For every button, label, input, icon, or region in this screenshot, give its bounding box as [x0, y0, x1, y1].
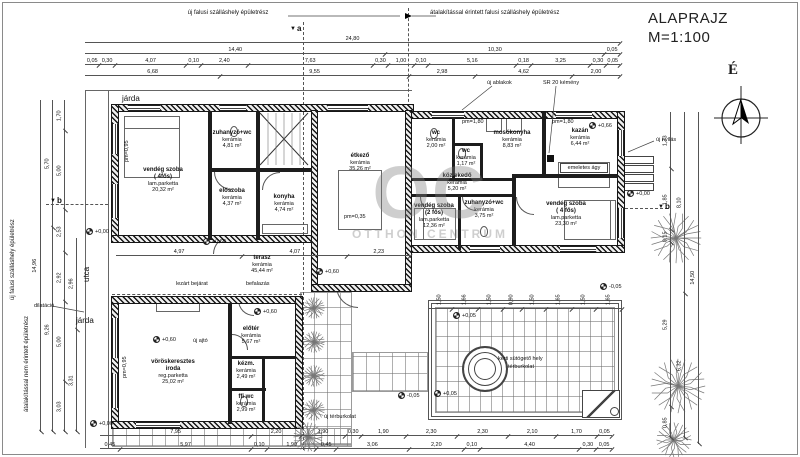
dimension-value: 1,90 — [318, 430, 329, 436]
dimension-segment: 1,90 — [361, 427, 405, 435]
room-area: 35,26 m² — [349, 166, 371, 172]
room-area: 1,17 m² — [457, 161, 476, 167]
partition-wall — [512, 174, 516, 246]
dimension-value: 5,00 — [57, 336, 63, 347]
window-icon — [560, 246, 596, 252]
section-marker: ▼b — [50, 196, 62, 205]
section-marker: ▼a — [290, 24, 301, 33]
dimension-value: 6,68 — [147, 70, 158, 76]
furniture-icon — [262, 224, 308, 234]
dimension-value: 0,05 — [599, 443, 610, 449]
section-marker-icon: ▼ — [658, 204, 664, 210]
room-name: zuhanyzó+wc — [213, 130, 252, 137]
dimension-segment: 1,66 — [452, 300, 478, 308]
partition-wall — [228, 388, 266, 391]
dimension-value: 1,50 — [531, 294, 537, 305]
level-mark: +0,60 — [153, 336, 176, 343]
exterior-stair-step — [624, 174, 654, 182]
dimension-segment: 2,96 — [68, 238, 76, 330]
partition-wall — [458, 197, 461, 250]
annotation: új ablakok — [487, 80, 512, 86]
dimension-value: 1,70 — [57, 110, 63, 121]
dimension-chain: 1,705,002,532,925,003,03 — [56, 100, 65, 432]
dimension-segment: 0,85 — [662, 407, 670, 438]
pavement-area — [352, 352, 428, 392]
level-mark: +0,60 — [316, 268, 339, 275]
dimension-segment: 0,18 — [516, 56, 530, 64]
dimension-segment: 0,90 — [503, 300, 522, 308]
partition-wall — [256, 111, 260, 172]
page-title: ALAPRAJZ — [648, 10, 728, 29]
dimension-segment: 5,00 — [56, 302, 64, 382]
dimension-value: 0,15 — [663, 231, 669, 242]
wall — [296, 297, 302, 428]
dimension-value: 1,65 — [606, 294, 612, 305]
dimension-segment: 2,30 — [457, 427, 508, 435]
window-icon — [432, 112, 464, 118]
dimension-segment: 2,53 — [56, 210, 64, 253]
dimension-value: 3,31 — [69, 376, 75, 387]
dimension-segment: 0,10 — [251, 440, 267, 448]
room-name: ffi wc — [236, 394, 256, 401]
parapet-label: pm=1,80 — [552, 119, 574, 125]
dimension-chain: 0,455,970,101,900,453,062,200,104,400,30… — [100, 440, 612, 449]
section-marker-letter: b — [665, 202, 670, 211]
section-marker-letter: b — [57, 196, 62, 205]
room-finish: kerámia — [447, 180, 467, 186]
dimension-value: 0,30 — [102, 59, 113, 65]
dimension-value: 0,05 — [599, 430, 610, 436]
dimension-segment: 0,30 — [579, 440, 596, 448]
room-name: étkező — [349, 153, 371, 160]
level-mark: +0,60 — [203, 238, 226, 245]
dimension-segment: 0,30 — [590, 56, 605, 64]
room-finish: kerámia — [456, 155, 476, 161]
annotation: új térburkolat — [322, 414, 358, 420]
partition-wall — [228, 303, 232, 424]
door-arc-icon — [516, 197, 534, 215]
room-finish: kerámia — [474, 207, 494, 213]
dimension-segment: 2,30 — [406, 427, 457, 435]
dimension-segment: 24,80 — [85, 34, 620, 42]
room-area: 2,49 m² — [237, 374, 256, 380]
room-finish: lam.parketta — [551, 215, 581, 221]
dimension-segment: 0,10 — [414, 56, 428, 64]
dimension-segment: 0,45 — [316, 440, 336, 448]
annotation: kerti sütögető hely — [498, 356, 543, 362]
window-icon — [220, 105, 246, 111]
chimney-icon — [547, 155, 554, 162]
dimension-value: 0,18 — [518, 59, 529, 65]
door-arc-icon — [262, 172, 280, 190]
dimension-segment: 0,05 — [596, 440, 612, 448]
room-label: kézm.kerámia2,49 m² — [236, 361, 256, 381]
dimension-value: 5,70 — [45, 159, 51, 170]
dimension-segment: 2,23 — [347, 247, 410, 255]
window-icon — [112, 124, 118, 154]
dimension-segment: 0,15 — [662, 230, 670, 243]
window-icon — [112, 318, 118, 358]
window-icon — [328, 105, 368, 111]
window-icon — [556, 112, 592, 118]
level-value: +0,05 — [462, 313, 476, 319]
room-label: kazánkerámia6,44 m² — [570, 128, 590, 148]
dimension-value: 0,30 — [348, 430, 359, 436]
room-area: 4,74 m² — [275, 207, 294, 213]
dimension-value: 4,07 — [145, 59, 156, 65]
level-mark: +0,00 — [90, 420, 113, 427]
dimension-segment: 5,97 — [120, 440, 252, 448]
room-label: ffi wckerámia2,99 m² — [236, 394, 256, 414]
partition-wall — [512, 174, 618, 178]
section-marker-letter: a — [297, 24, 301, 33]
dimension-segment: 0,05 — [597, 427, 612, 435]
room-name: vendég szoba — [546, 201, 586, 208]
dimension-chain: 0,050,304,070,102,407,630,301,000,105,16… — [85, 56, 620, 65]
dimension-segment: 4,40 — [480, 440, 580, 448]
level-value: -0,05 — [407, 393, 420, 399]
partition-wall — [542, 112, 546, 178]
site-line — [85, 90, 412, 91]
dimension-value: 7,95 — [170, 430, 181, 436]
level-value: +0,60 — [263, 309, 277, 315]
dimension-chain: 8,106,32 — [676, 112, 685, 438]
level-value: -0,05 — [609, 284, 622, 290]
dimension-value: 4,40 — [524, 443, 535, 449]
annotation: emeletes ágy — [560, 163, 608, 173]
room-finish: reg.parketta — [158, 373, 187, 379]
level-mark-icon — [600, 283, 607, 290]
dimension-segment: 5,29 — [662, 243, 670, 407]
dimension-value: 0,10 — [466, 443, 477, 449]
dimension-segment: 14,50 — [690, 112, 698, 444]
dimension-segment: 7,95 — [100, 427, 251, 435]
room-area: 6,44 m² — [571, 141, 590, 147]
room-label: vendég szoba(2 fős)lam.parketta12,36 m² — [414, 203, 454, 229]
dimension-segment: 1,50 — [478, 300, 502, 308]
annotation: SR 20 kémény — [543, 80, 579, 86]
dimension-segment: 2,20 — [251, 427, 301, 435]
dimension-segment: 3,06 — [336, 440, 409, 448]
room-label: étkezőkerámia35,26 m² — [349, 153, 371, 173]
dimension-value: 2,40 — [219, 59, 230, 65]
room-name: kazán — [570, 128, 590, 135]
dimension-value: 6,32 — [677, 361, 683, 372]
partition-wall — [452, 143, 483, 146]
dimension-segment: 3,31 — [68, 330, 76, 432]
room-area: 23,30 m² — [555, 221, 577, 227]
dimension-value: 10,30 — [488, 48, 502, 54]
room-label: mosókonyhakerámia8,83 m² — [493, 130, 530, 150]
room-capacity: iroda — [151, 366, 195, 373]
dimension-value: 1,50 — [581, 294, 587, 305]
dimension-value: 4,07 — [289, 250, 300, 256]
dimension-value: 2,53 — [57, 226, 63, 237]
site-note: átalakítással nem érintett épületrész — [24, 316, 31, 412]
dimension-value: 3,06 — [367, 443, 378, 449]
dimension-value: 0,30 — [375, 59, 386, 65]
room-area: 2,00 m² — [427, 143, 446, 149]
room-area: 12,36 m² — [423, 223, 445, 229]
dimension-value: 7,63 — [305, 59, 316, 65]
dimension-value: 0,05 — [607, 59, 618, 65]
dimension-segment: 0,05 — [85, 56, 99, 64]
dimension-value: 9,26 — [45, 325, 51, 336]
level-mark-icon — [453, 312, 460, 319]
furniture-icon — [610, 200, 616, 240]
dimension-value: 2,10 — [527, 430, 538, 436]
wall — [112, 297, 302, 303]
room-name: közlekedő — [442, 173, 471, 180]
dimension-value: 14,40 — [228, 48, 242, 54]
dimension-value: 3,25 — [555, 59, 566, 65]
section-dash-line — [112, 294, 302, 295]
dimension-segment: 10,30 — [385, 45, 604, 53]
room-area: 2,99 m² — [237, 407, 256, 413]
room-name: zuhanyzó+wc — [465, 200, 504, 207]
site-note: utca — [82, 267, 92, 282]
room-finish: kerámia — [222, 137, 242, 143]
dimension-segment: 2,10 — [508, 427, 556, 435]
dimension-segment: 0,10 — [464, 440, 480, 448]
dimension-segment: 1,90 — [267, 440, 316, 448]
dimension-value: 3,03 — [57, 401, 63, 412]
dimension-segment: 14,40 — [85, 45, 385, 53]
room-finish: kerámia — [350, 160, 370, 166]
floor-plan-sheet: ALAPRAJZ M=1:100 É új falusi szálláshely… — [0, 0, 800, 457]
dimension-segment: 9,26 — [44, 228, 52, 432]
dimension-value: 2,98 — [437, 70, 448, 76]
level-mark: +0,00 — [627, 190, 650, 197]
dimension-chain: 7,952,201,900,301,902,302,302,101,700,05 — [100, 427, 612, 436]
room-area: 5,20 m² — [448, 186, 467, 192]
room-label: wckerámia1,17 m² — [456, 148, 476, 168]
room-capacity: ( 4fős) — [143, 174, 183, 181]
dimension-value: 0,45 — [321, 443, 332, 449]
note-new-building-part: új falusi szálláshely épületrész — [168, 10, 288, 17]
dimension-segment: 5,70 — [44, 100, 52, 228]
parapet-label: pm=0,95 — [124, 140, 130, 162]
dimension-segment: 0,30 — [373, 56, 388, 64]
drawing-scale: M=1:100 — [648, 29, 728, 48]
dimension-value: 24,80 — [346, 37, 360, 43]
dimension-segment: 1,65 — [596, 300, 622, 308]
partition-wall — [208, 168, 312, 172]
dimension-segment: 4,62 — [475, 67, 572, 75]
room-finish: kerámia — [502, 137, 522, 143]
annotation: új ajtó — [193, 338, 208, 344]
room-finish: kerámia — [252, 262, 272, 268]
dimension-chain: 24,80 — [85, 34, 620, 43]
annotation: térburkolat — [508, 364, 534, 370]
partition-wall — [452, 118, 455, 178]
room-label: zuhanyzó+wckerámia3,75 m² — [465, 200, 504, 220]
dimension-chain: 1,501,661,500,901,501,651,501,65 — [428, 300, 622, 309]
level-value: +0,00 — [99, 421, 113, 427]
dimension-value: 2,30 — [426, 430, 437, 436]
partition-wall — [256, 172, 260, 240]
dimension-segment: 1,50 — [522, 300, 546, 308]
level-mark: -0,05 — [600, 283, 622, 290]
partition-wall — [480, 143, 483, 178]
partition-wall — [262, 356, 265, 422]
dimension-segment: 9,55 — [220, 67, 409, 75]
north-label: É — [728, 62, 738, 79]
toilet-icon — [480, 226, 488, 237]
room-name: mosókonyha — [493, 130, 530, 137]
dimension-value: 2,96 — [69, 279, 75, 290]
site-note: új falusi szálláshely épületrész — [10, 219, 17, 300]
dimension-segment: 0,45 — [100, 440, 120, 448]
dimension-value: 0,10 — [416, 59, 427, 65]
dimension-segment: 0,05 — [604, 45, 620, 53]
dimension-segment: 14,96 — [32, 100, 40, 432]
level-mark-icon — [434, 390, 441, 397]
window-icon — [618, 130, 624, 156]
partition-wall — [412, 194, 512, 197]
dimension-value: 2,00 — [591, 70, 602, 76]
garden-well-icon — [462, 346, 508, 392]
dimension-value: 14,96 — [33, 259, 39, 273]
dimension-segment: 1,50 — [428, 300, 452, 308]
room-finish: kerámia — [241, 333, 261, 339]
dimension-chain: 6,689,552,984,622,00 — [85, 67, 620, 76]
room-name: vendég szoba — [414, 203, 454, 210]
room-area: 3,75 m² — [475, 213, 494, 219]
room-finish: kerámia — [426, 137, 446, 143]
level-mark: -0,05 — [398, 392, 420, 399]
dimension-value: 2,20 — [431, 443, 442, 449]
dimension-value: 0,90 — [509, 294, 515, 305]
dimension-value: 0,05 — [87, 59, 98, 65]
annotation: dilatáció — [34, 303, 54, 309]
room-finish: kerámia — [274, 201, 294, 207]
dimension-segment: 2,98 — [409, 67, 475, 75]
dimension-segment: 1,70 — [556, 427, 597, 435]
dimension-value: 2,20 — [271, 430, 282, 436]
dimension-segment: 3,03 — [56, 382, 64, 432]
parapet-label: pm=0,95 — [122, 356, 128, 378]
room-label: vendég szoba( 4 fős)lam.parketta23,30 m² — [546, 201, 586, 227]
dimension-value: 1,65 — [556, 294, 562, 305]
dimension-value: 8,10 — [677, 198, 683, 209]
dimension-value: 1,70 — [571, 430, 582, 436]
window-icon — [618, 208, 624, 238]
dimension-segment: 1,50 — [572, 300, 596, 308]
window-icon — [470, 246, 500, 252]
level-mark: +0,60 — [254, 308, 277, 315]
room-label: közlekedőkerámia5,20 m² — [442, 173, 471, 193]
dimension-segment: 4,07 — [242, 247, 347, 255]
dimension-segment: 0,30 — [345, 427, 361, 435]
dimension-chain: 14,96 — [32, 100, 41, 432]
window-icon — [112, 374, 118, 408]
room-name: wc — [456, 148, 476, 155]
room-label: vendég szoba( 4fős)lam.parketta20,32 m² — [143, 167, 183, 193]
furniture-icon — [124, 116, 180, 129]
dimension-value: 2,23 — [373, 250, 384, 256]
wall — [112, 297, 118, 428]
dimension-segment: 1,85 — [662, 169, 670, 230]
site-note: járda — [76, 316, 94, 326]
level-mark-icon — [90, 420, 97, 427]
dimension-value: 1,90 — [286, 443, 297, 449]
dimension-value: 2,92 — [57, 272, 63, 283]
furniture-icon — [156, 303, 200, 312]
room-name: vendég szoba — [143, 167, 183, 174]
room-label: előtérkerámia5,67 m² — [241, 326, 261, 346]
dimension-value: 0,10 — [254, 443, 265, 449]
section-marker-icon: ▼ — [50, 198, 56, 204]
dimension-segment: 8,10 — [676, 112, 684, 294]
room-finish: kerámia — [236, 401, 256, 407]
dimension-segment: 2,40 — [201, 56, 248, 64]
dimension-chain: 2,963,31 — [68, 238, 77, 432]
dimension-segment: 4,07 — [115, 56, 187, 64]
level-mark: +0,05 — [453, 312, 476, 319]
dimension-value: 1,50 — [437, 294, 443, 305]
room-label: zuhanyzó+wckerámia4,81 m² — [213, 130, 252, 150]
dimension-segment: 3,25 — [531, 56, 590, 64]
dimension-value: 5,97 — [180, 443, 191, 449]
dimension-value: 1,90 — [378, 430, 389, 436]
dimension-segment: 7,63 — [248, 56, 373, 64]
room-area: 45,44 m² — [251, 268, 273, 274]
exterior-stair-step — [624, 156, 654, 164]
dimension-chain: 5,709,26 — [44, 100, 53, 432]
pavement-area — [300, 292, 352, 445]
level-mark: +0,66 — [589, 122, 612, 129]
room-finish: lam.parketta — [419, 217, 449, 223]
parapet-label: pm=1,80 — [462, 119, 484, 125]
room-label: wckerámia2,00 m² — [426, 130, 446, 150]
annotation: új nyílás — [656, 137, 676, 143]
room-name: wc — [426, 130, 446, 137]
wall — [312, 111, 317, 291]
room-name: kézm. — [236, 361, 256, 368]
level-mark: +0,00 — [86, 228, 109, 235]
window-icon — [112, 184, 118, 218]
dimension-segment: 1,70 — [56, 100, 64, 131]
exterior-stair-step — [624, 165, 654, 173]
dimension-segment: 5,16 — [428, 56, 516, 64]
room-capacity: (2 fős) — [414, 210, 454, 217]
note-converted-building-part: átalakítással érintett falusi szálláshel… — [430, 10, 580, 17]
room-name: előszoba — [219, 188, 245, 195]
room-area: 5,67 m² — [242, 339, 261, 345]
wall — [406, 111, 411, 291]
room-finish: lam.parketta — [148, 181, 178, 187]
level-value: +0,60 — [162, 337, 176, 343]
level-value: +0,05 — [443, 391, 457, 397]
level-value: +0,66 — [598, 123, 612, 129]
window-icon — [128, 105, 160, 111]
level-mark-icon — [86, 228, 93, 235]
room-name: terasz — [251, 255, 273, 262]
dimension-value: 9,55 — [309, 70, 320, 76]
dimension-value: 0,30 — [582, 443, 593, 449]
dimension-segment: 0,05 — [606, 56, 620, 64]
dimension-segment: 0,30 — [99, 56, 114, 64]
dimension-value: 0,30 — [593, 59, 604, 65]
dimension-value: 1,50 — [488, 294, 494, 305]
partition-wall — [208, 111, 212, 240]
dimension-value: 0,85 — [663, 417, 669, 428]
annotation: befalazás — [246, 281, 270, 287]
dimension-value: 4,97 — [174, 250, 185, 256]
dimension-segment: 6,32 — [676, 294, 684, 438]
parapet-label: pm=0,35 — [344, 214, 366, 220]
